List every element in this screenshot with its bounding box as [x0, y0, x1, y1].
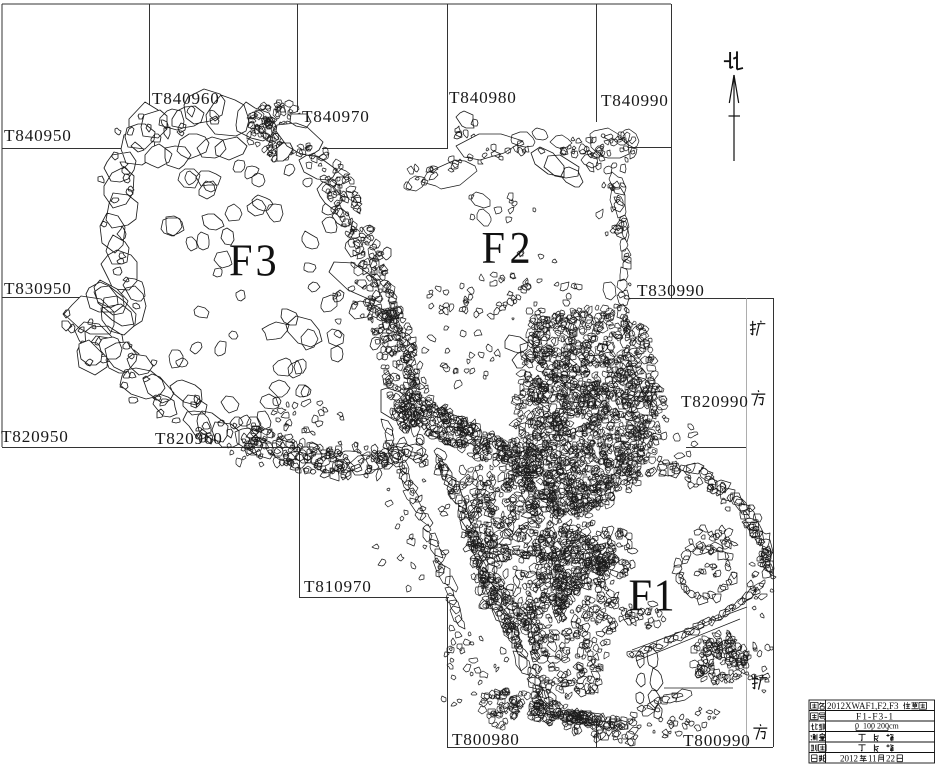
- svg-text:T820950: T820950: [1, 427, 69, 446]
- svg-text:F: F: [482, 223, 506, 274]
- svg-text:T840960: T840960: [152, 89, 220, 108]
- svg-text:T840980: T840980: [449, 88, 517, 107]
- svg-text:F: F: [229, 235, 253, 286]
- svg-text:F: F: [629, 570, 653, 621]
- svg-text:3: 3: [256, 235, 277, 286]
- svg-text:2: 2: [510, 223, 531, 274]
- svg-text:T840990: T840990: [601, 91, 669, 110]
- svg-text:T820960: T820960: [155, 429, 223, 448]
- svg-text:0 100 200cm: 0 100 200cm: [855, 722, 900, 731]
- svg-text:T830990: T830990: [637, 281, 705, 300]
- svg-text:T820990: T820990: [681, 392, 749, 411]
- svg-text:T840970: T840970: [302, 107, 370, 126]
- svg-text:T800990: T800990: [683, 731, 751, 750]
- svg-text:11: 11: [868, 754, 877, 764]
- svg-text:T800980: T800980: [452, 730, 520, 749]
- svg-text:T830950: T830950: [4, 279, 72, 298]
- svg-text:T810970: T810970: [304, 577, 372, 596]
- svg-text:2012: 2012: [840, 754, 858, 764]
- svg-text:22: 22: [886, 754, 895, 764]
- svg-text:2012XWAF1,F2,F3: 2012XWAF1,F2,F3: [827, 701, 899, 711]
- svg-text:1: 1: [654, 570, 675, 621]
- svg-text:T840950: T840950: [4, 126, 72, 145]
